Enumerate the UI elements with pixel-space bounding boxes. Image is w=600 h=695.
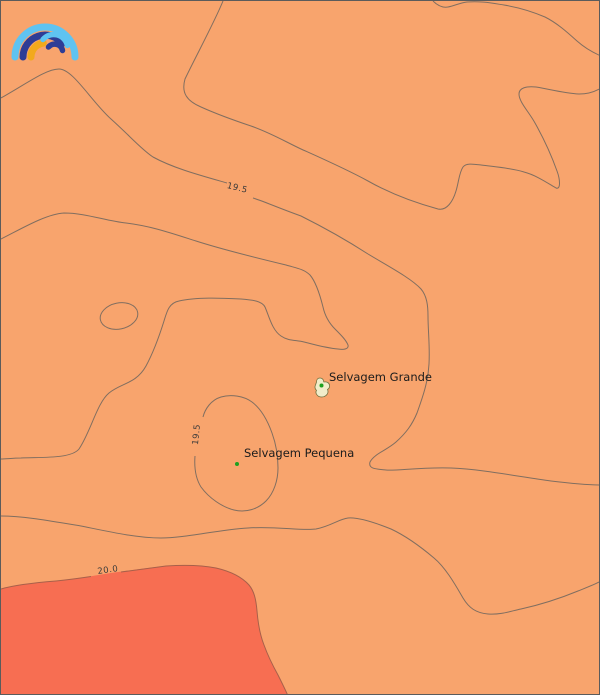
logo-arc-navy-inner bbox=[49, 44, 63, 50]
isoline-19-5-northwest-a bbox=[1, 69, 227, 183]
logo-arc-yellow bbox=[31, 43, 43, 57]
isoline-19-5-northwest-b bbox=[253, 198, 600, 485]
weather-map[interactable]: 19.5 19.5 20.0 Selvagem Grande Selvagem … bbox=[0, 0, 600, 695]
selvagem-pequena-marker bbox=[235, 462, 239, 466]
rainbow-logo-icon bbox=[7, 11, 83, 63]
isoline-19-5-northeast bbox=[184, 1, 600, 209]
selvagem-grande-island bbox=[315, 378, 330, 397]
place-label-selvagem-pequena: Selvagem Pequena bbox=[244, 447, 354, 459]
contour-map-canvas bbox=[1, 1, 600, 695]
isoline-19-5-top-diagonal bbox=[433, 1, 600, 56]
isoline-19-5-small-loop bbox=[98, 299, 141, 332]
place-label-selvagem-grande: Selvagem Grande bbox=[329, 371, 432, 383]
isoline-19-5-central-tongue bbox=[1, 213, 348, 459]
warm-region-above-20 bbox=[1, 565, 288, 695]
selvagem-grande-marker bbox=[320, 384, 324, 388]
